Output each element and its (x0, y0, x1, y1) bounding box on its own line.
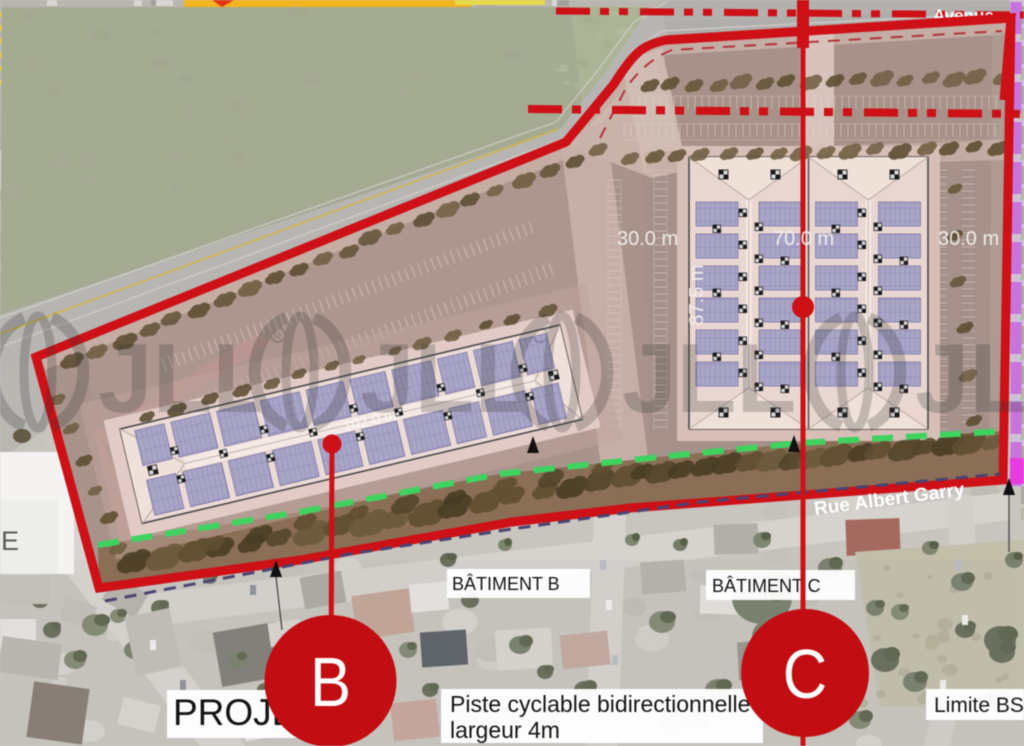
svg-text:largeur 4m: largeur 4m (450, 717, 560, 743)
svg-text:R: R (274, 332, 281, 343)
svg-text:JLL: JLL (915, 323, 1024, 433)
svg-text:70.0 m: 70.0 m (773, 228, 834, 250)
svg-text:JLL: JLL (360, 323, 534, 433)
svg-text:Piste cyclable bidirectionnell: Piste cyclable bidirectionnelle (450, 691, 750, 717)
svg-text:B: B (310, 642, 351, 721)
svg-text:BÂTIMENT B: BÂTIMENT B (452, 574, 560, 594)
svg-text:C: C (783, 634, 827, 713)
svg-text:Limite BS: Limite BS (934, 694, 1024, 717)
svg-text:30.0 m: 30.0 m (938, 228, 999, 250)
svg-text:87.5 m: 87.5 m (686, 264, 708, 325)
svg-text:JLL: JLL (622, 323, 796, 433)
svg-text:E: E (1, 526, 19, 556)
svg-text:30.0 m: 30.0 m (617, 228, 678, 250)
svg-text:JLL: JLL (98, 323, 272, 433)
